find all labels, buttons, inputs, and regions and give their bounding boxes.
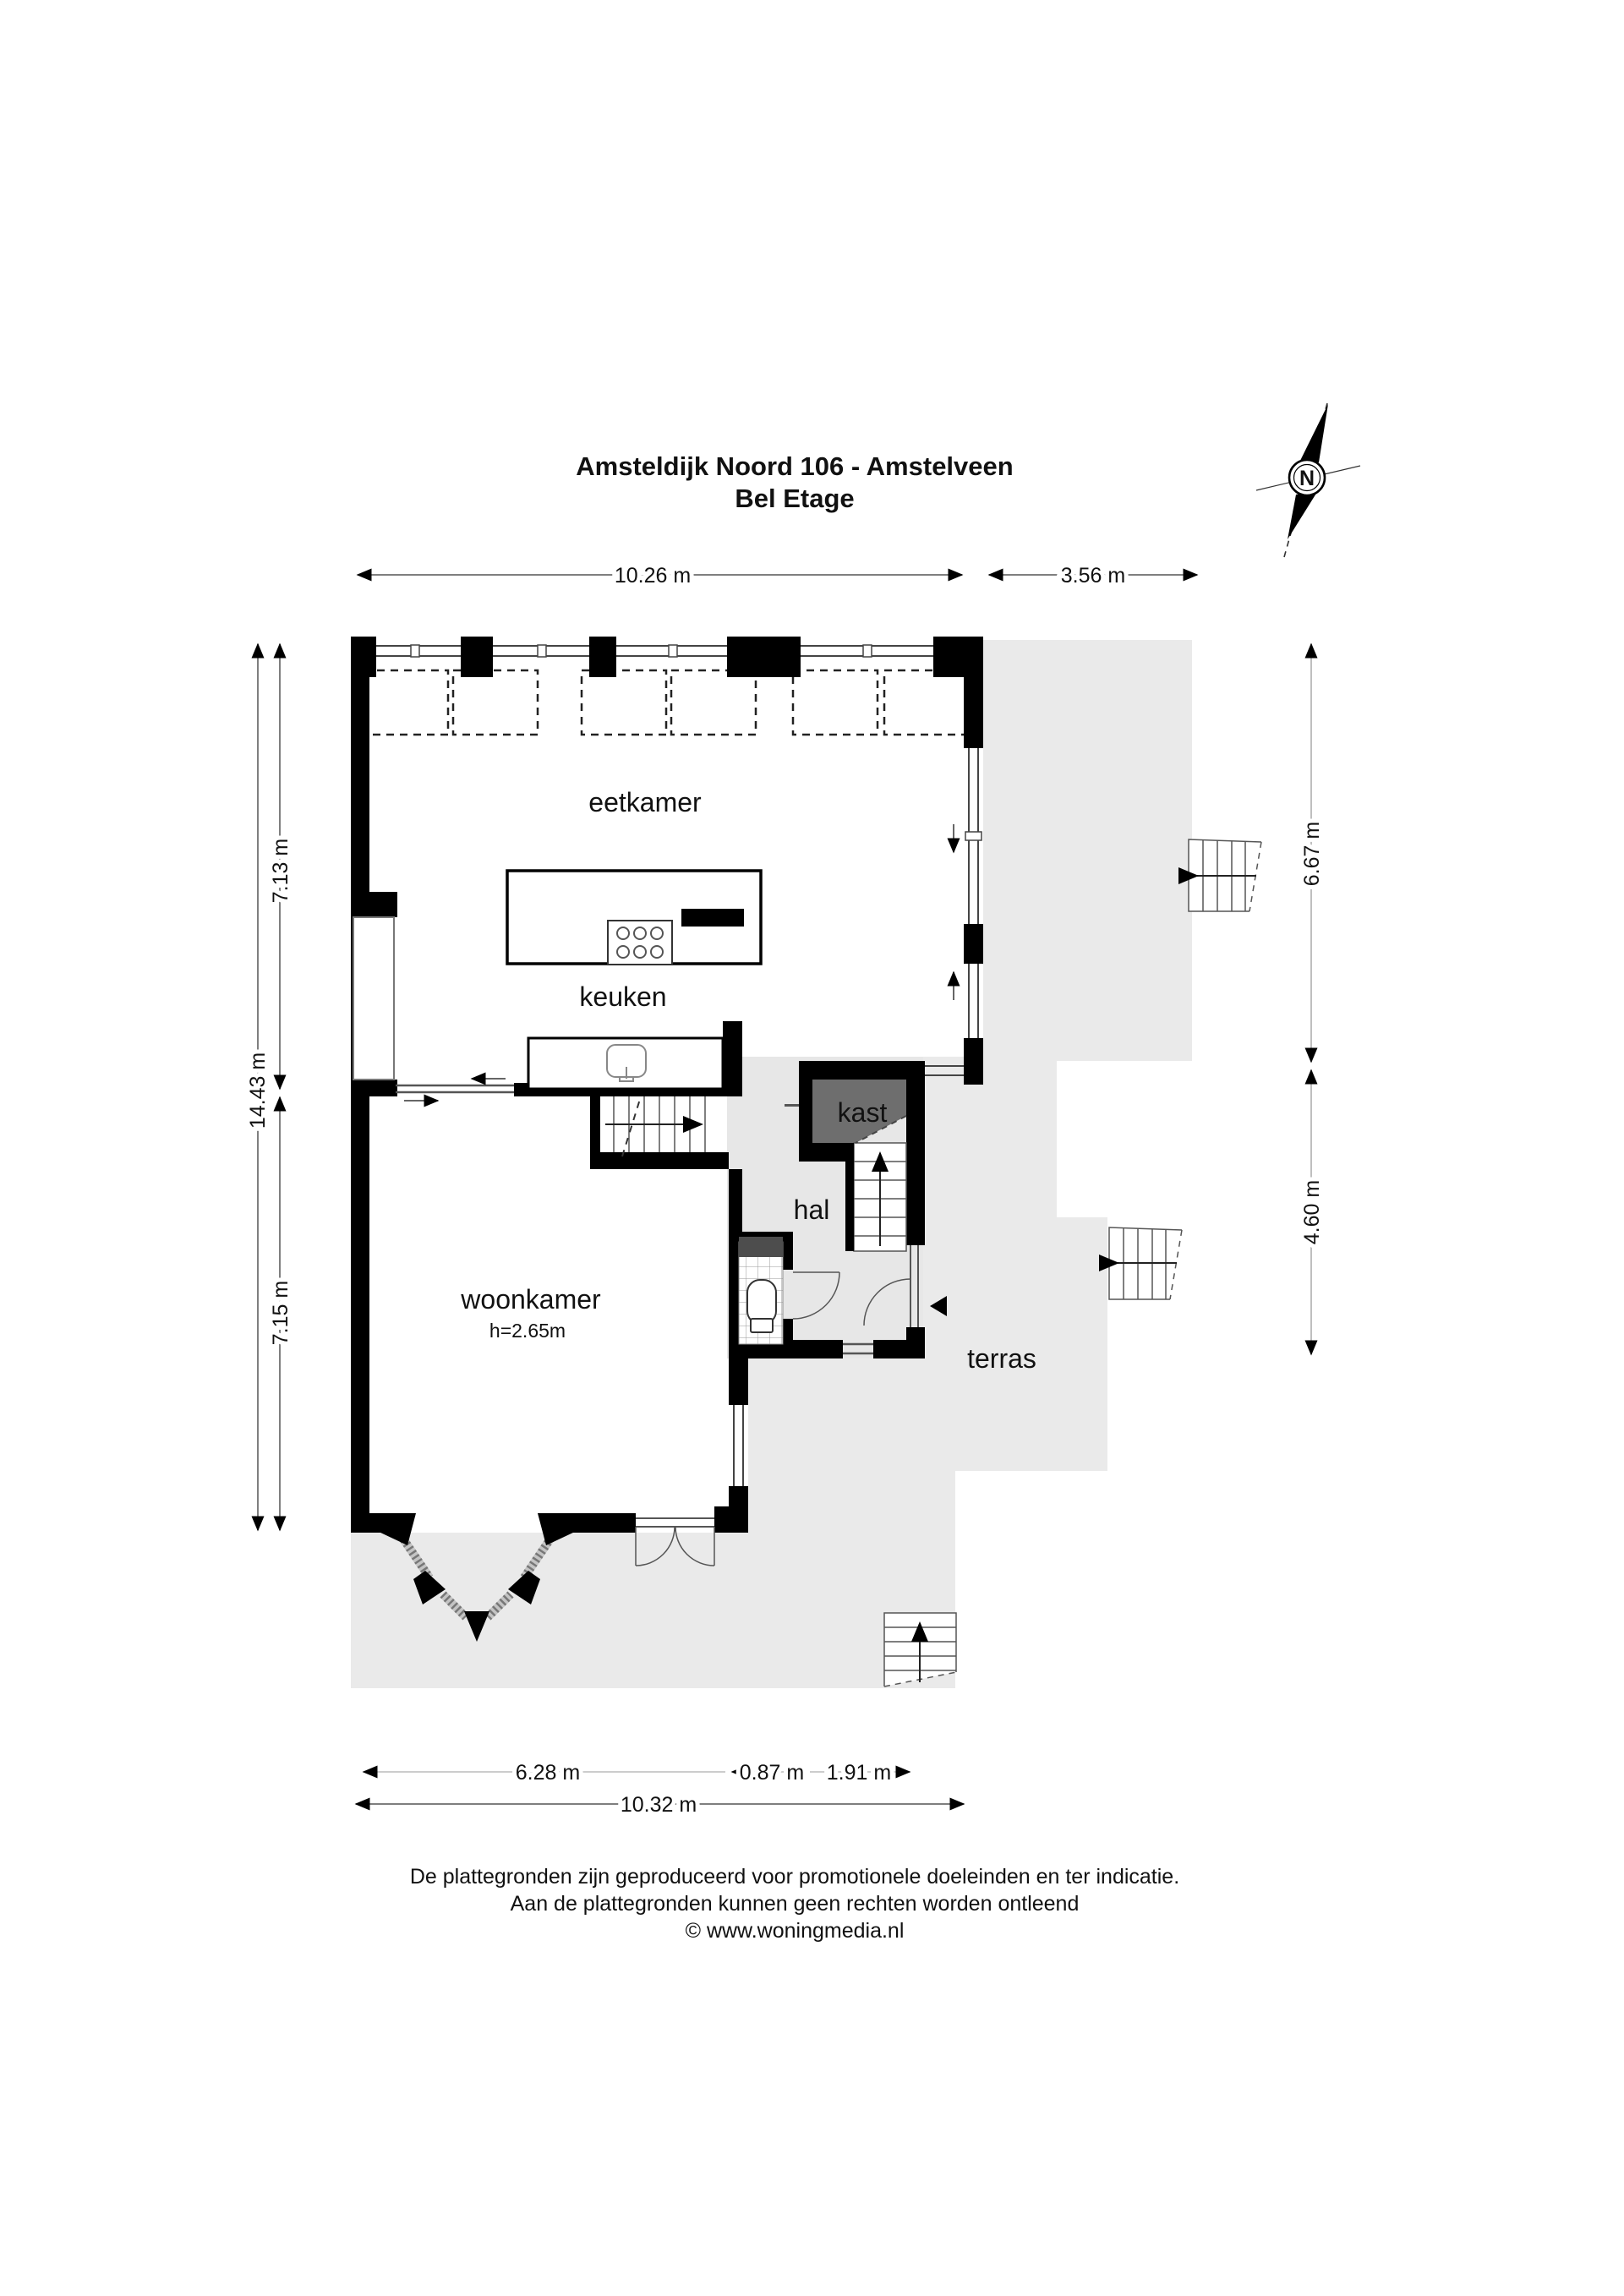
floorplan-drawing: Amsteldijk Noord 106 - Amstelveen Bel Et…	[0, 0, 1624, 2296]
footer-line-2: Aan de plattegronden kunnen geen rechten…	[511, 1892, 1080, 1916]
compass-north-label: N	[1299, 467, 1315, 490]
label-eetkamer: eetkamer	[588, 787, 702, 817]
island-sink-icon	[681, 909, 744, 927]
dim-left-upper: 7.13 m	[269, 839, 293, 903]
label-keuken: keuken	[579, 981, 666, 1012]
dim-left-lower: 7.15 m	[269, 1281, 293, 1345]
toilet-icon	[747, 1280, 776, 1332]
dim-bottom-mid: 0.87 m	[740, 1761, 804, 1785]
kitchen-island	[507, 871, 761, 965]
dim-top-right: 3.56 m	[1061, 564, 1125, 588]
wc-shelf	[739, 1237, 783, 1257]
outdoor-stairs-upper	[1189, 839, 1261, 911]
floorplan-page: Amsteldijk Noord 106 - Amstelveen Bel Et…	[0, 0, 1624, 2296]
disclaimer-footer: De plattegronden zijn geproduceerd voor …	[410, 1865, 1179, 1943]
dim-bottom-left: 6.28 m	[516, 1761, 580, 1785]
kitchen-stairs	[600, 1096, 710, 1156]
label-hal: hal	[794, 1194, 830, 1225]
cooktop-icon	[608, 921, 672, 965]
dim-top-main: 10.26 m	[615, 564, 691, 588]
compass-icon: N	[1256, 403, 1360, 557]
dim-bottom-total: 10.32 m	[621, 1793, 697, 1817]
title-line-2: Bel Etage	[735, 484, 854, 513]
plan-title: Amsteldijk Noord 106 - Amstelveen Bel Et…	[576, 451, 1013, 513]
outdoor-stairs-middle	[1109, 1227, 1182, 1299]
dim-right-lower: 4.60 m	[1300, 1180, 1324, 1244]
skylight-squares	[364, 670, 969, 735]
label-terras: terras	[967, 1343, 1036, 1374]
dim-bottom-right: 1.91 m	[827, 1761, 891, 1785]
title-line-1: Amsteldijk Noord 106 - Amstelveen	[576, 451, 1013, 481]
kitchen-counter	[528, 1038, 723, 1089]
footer-line-1: De plattegronden zijn geproduceerd voor …	[410, 1865, 1179, 1889]
label-woonkamer: woonkamer	[460, 1284, 601, 1315]
label-woonkamer-height: h=2.65m	[489, 1320, 566, 1342]
label-kast: kast	[838, 1097, 888, 1128]
dim-left-total: 14.43 m	[246, 1052, 270, 1129]
dim-right-upper: 6.67 m	[1300, 822, 1324, 886]
footer-line-3: © www.woningmedia.nl	[686, 1919, 905, 1943]
